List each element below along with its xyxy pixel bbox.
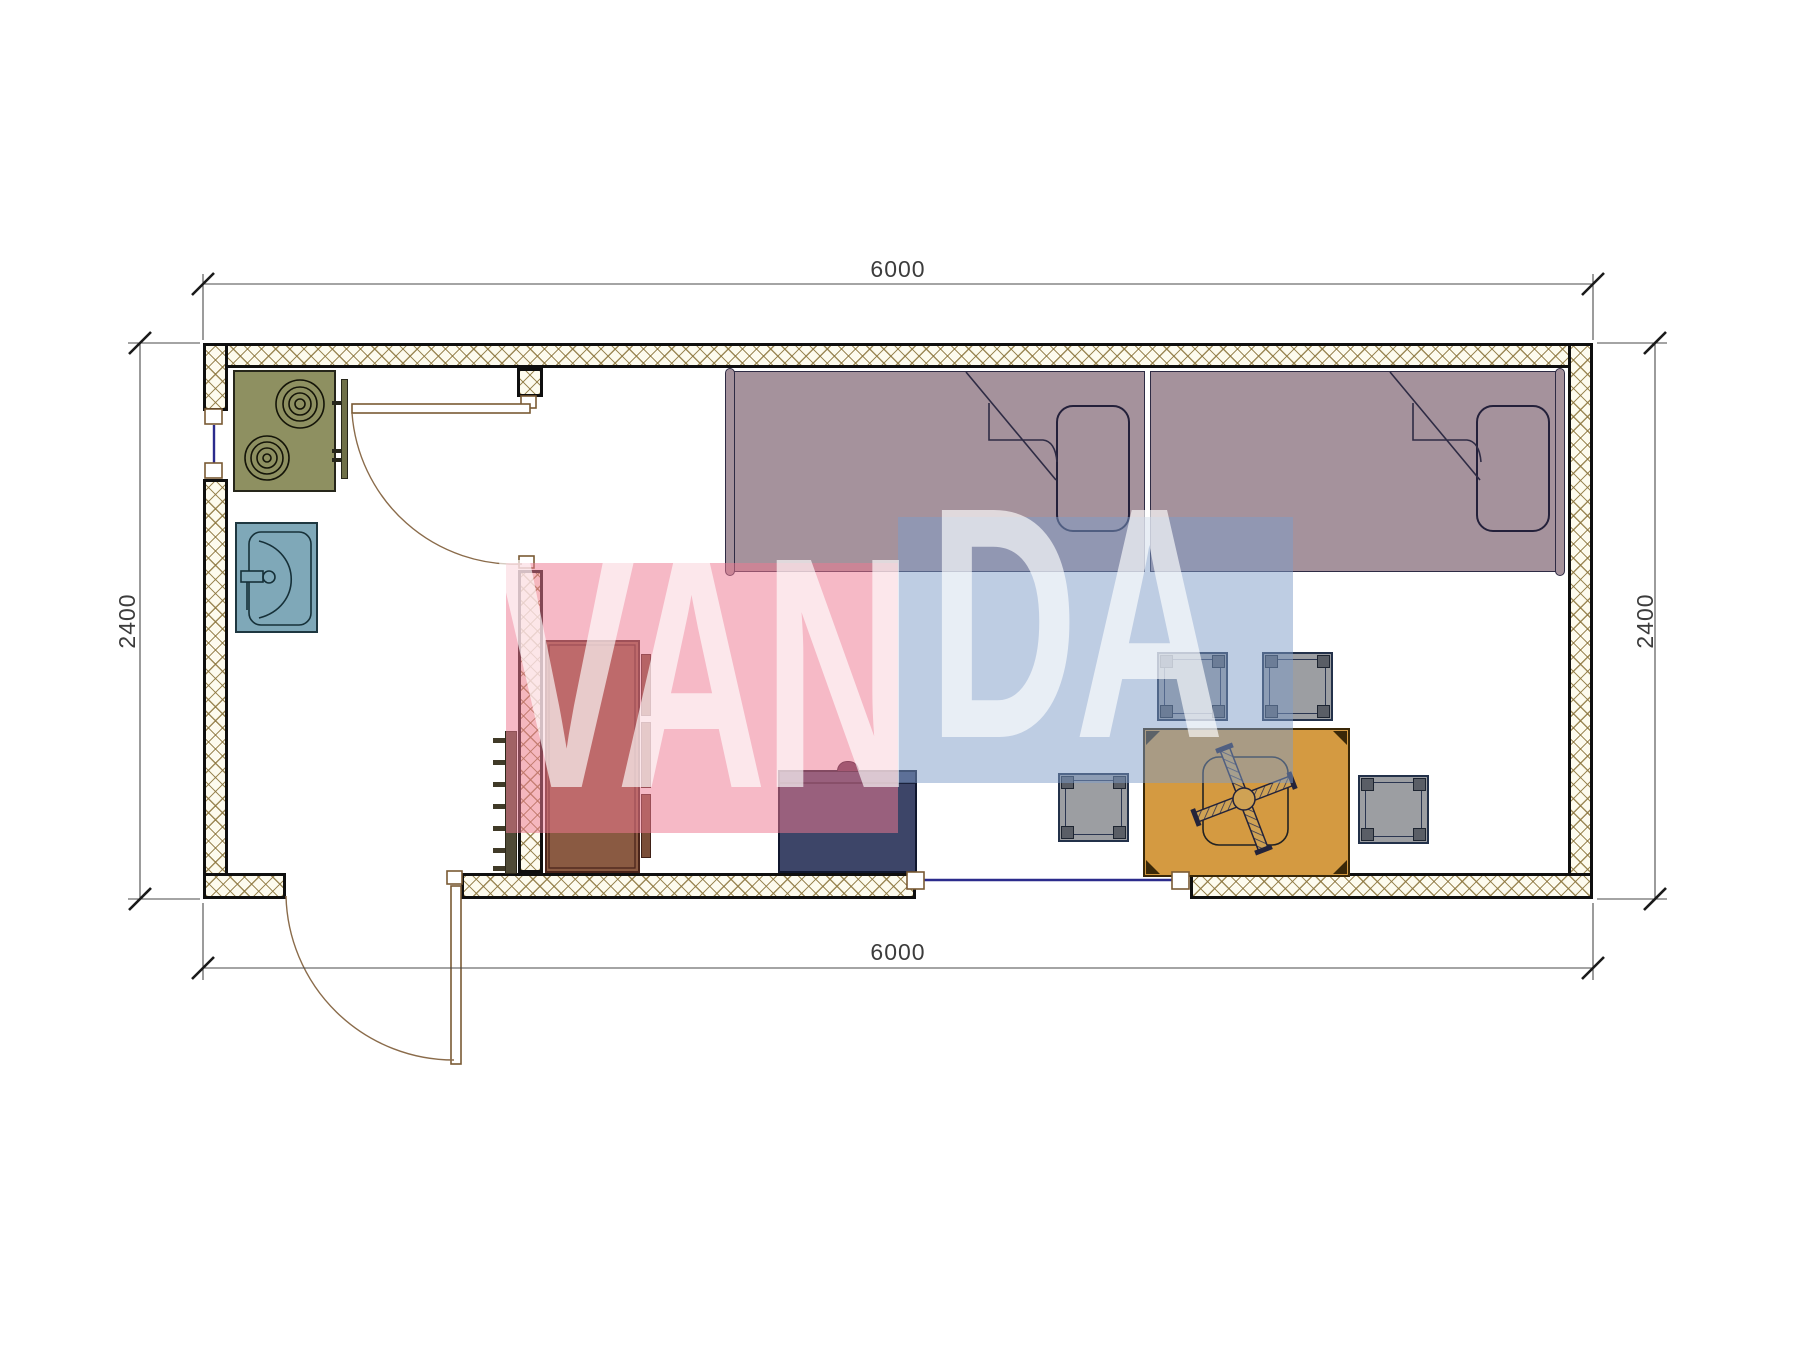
watermark-text-van: VAN: [497, 508, 909, 838]
dimension-right: 2400: [1632, 571, 1658, 671]
dimension-top: 6000: [848, 256, 948, 282]
watermark-text-da: DA: [928, 458, 1221, 788]
window-left: [205, 409, 222, 478]
dimension-bottom: 6000: [848, 939, 948, 965]
sink-basin-icon: [241, 532, 311, 625]
window-bottom: [907, 872, 1189, 889]
floor-plan-canvas: VAN DA 6000 6000 2400 2400: [0, 0, 1800, 1350]
stove-knob-icon: [332, 403, 342, 460]
dimension-left: 2400: [114, 571, 140, 671]
burner-icon: [245, 380, 324, 480]
